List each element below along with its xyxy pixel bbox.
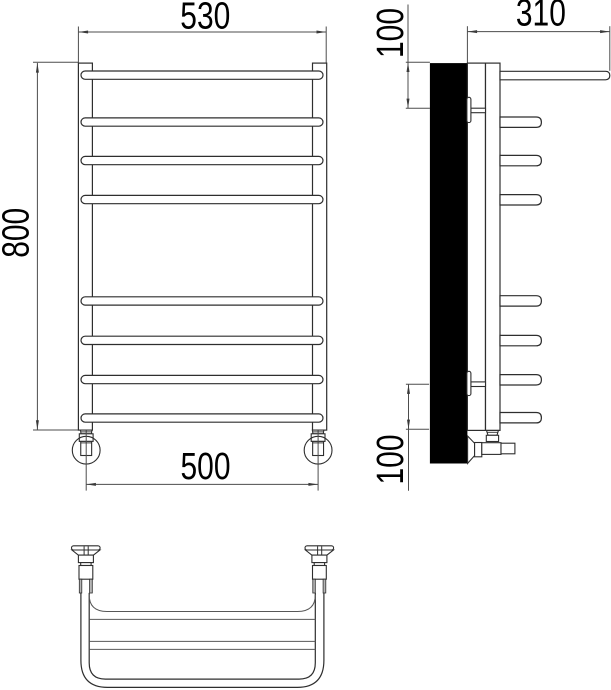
svg-text:530: 530 bbox=[180, 0, 230, 36]
svg-text:310: 310 bbox=[516, 0, 566, 33]
svg-text:100: 100 bbox=[369, 435, 411, 485]
svg-text:500: 500 bbox=[181, 445, 231, 487]
svg-text:800: 800 bbox=[0, 208, 37, 258]
svg-text:100: 100 bbox=[369, 8, 411, 58]
